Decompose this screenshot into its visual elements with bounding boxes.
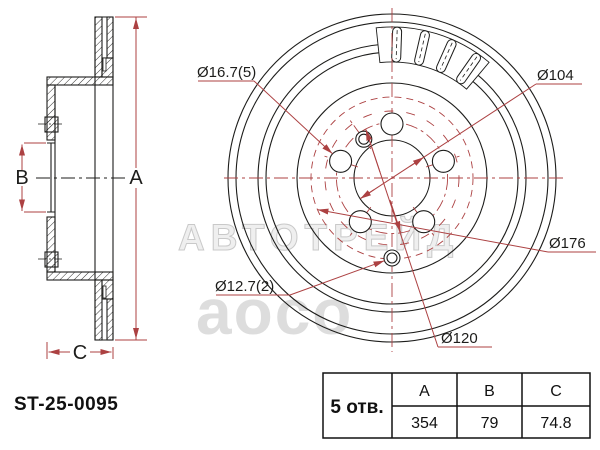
table-holes-label: 5 отв. <box>330 397 383 418</box>
label-center-bore: Ø104 <box>537 67 574 84</box>
bolt-hole <box>432 150 454 172</box>
table-header-b: B <box>484 383 495 400</box>
label-hub-face: Ø176 <box>549 235 586 252</box>
bolt-hole <box>381 113 403 135</box>
side-view <box>36 17 128 340</box>
table-value-a: 354 <box>411 415 438 432</box>
spec-table: 5 отв. A B C 354 79 74.8 <box>323 373 590 438</box>
table-value-b: 79 <box>481 415 499 432</box>
table-header-c: C <box>550 383 562 400</box>
label-bolt-holes: Ø16.7(5) <box>197 64 256 81</box>
label-pcd: Ø120 <box>441 330 478 347</box>
bolt-hole <box>349 211 371 233</box>
dim-label-b: B <box>15 167 28 189</box>
label-pin-holes: Ø12.7(2) <box>215 278 274 295</box>
pin-hole <box>387 253 397 263</box>
drawing-svg: АВТОТРЕЙД aoco <box>0 0 600 450</box>
dim-label-c: C <box>73 342 87 364</box>
pin-hole <box>359 134 369 144</box>
side-dimensions <box>22 17 147 359</box>
dim-label-a: A <box>129 167 143 189</box>
table-value-c: 74.8 <box>540 415 571 432</box>
table-header-a: A <box>419 383 430 400</box>
part-number: ST-25-0095 <box>14 394 118 415</box>
brake-disc-drawing: АВТОТРЕЙД aoco <box>0 0 600 450</box>
bolt-hole <box>330 150 352 172</box>
